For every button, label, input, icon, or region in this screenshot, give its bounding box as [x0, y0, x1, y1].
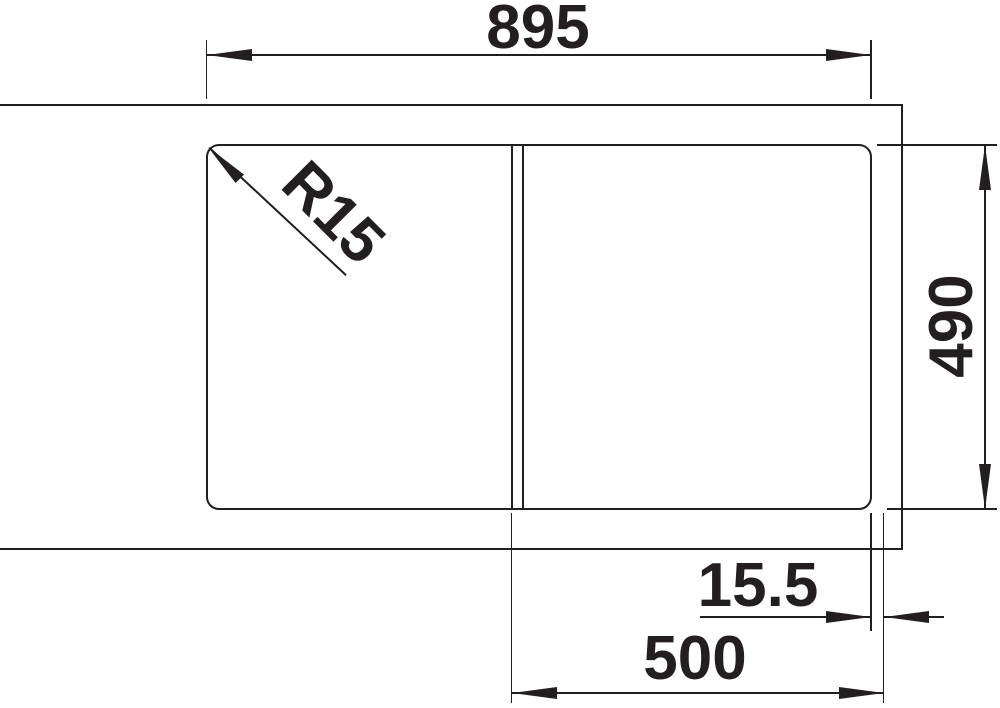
dim-label-depth: 490 — [921, 274, 983, 377]
dim-label-web-offset: 15.5 — [698, 555, 819, 617]
extension-line-500-left — [511, 513, 513, 703]
dim-490-bottom-arrow-icon — [979, 464, 991, 509]
dim-500-left-arrow-icon — [512, 687, 557, 699]
technical-drawing-canvas: 895 490 15.5 500 R15 — [0, 0, 1000, 708]
dim-155-left-arrow-icon — [826, 611, 871, 623]
dim-500-right-arrow-icon — [839, 687, 884, 699]
divider-right-line — [522, 146, 524, 508]
dim-895-right-arrow-icon — [826, 49, 871, 61]
dim-155-right-arrow-icon — [884, 611, 929, 623]
divider-left-line — [511, 146, 513, 508]
dim-895-left-arrow-icon — [207, 49, 252, 61]
dim-label-bowl-width: 500 — [643, 628, 746, 690]
extension-line-155-right — [883, 513, 885, 703]
dim-490-top-arrow-icon — [979, 145, 991, 190]
dim-label-overall-width: 895 — [486, 0, 589, 59]
